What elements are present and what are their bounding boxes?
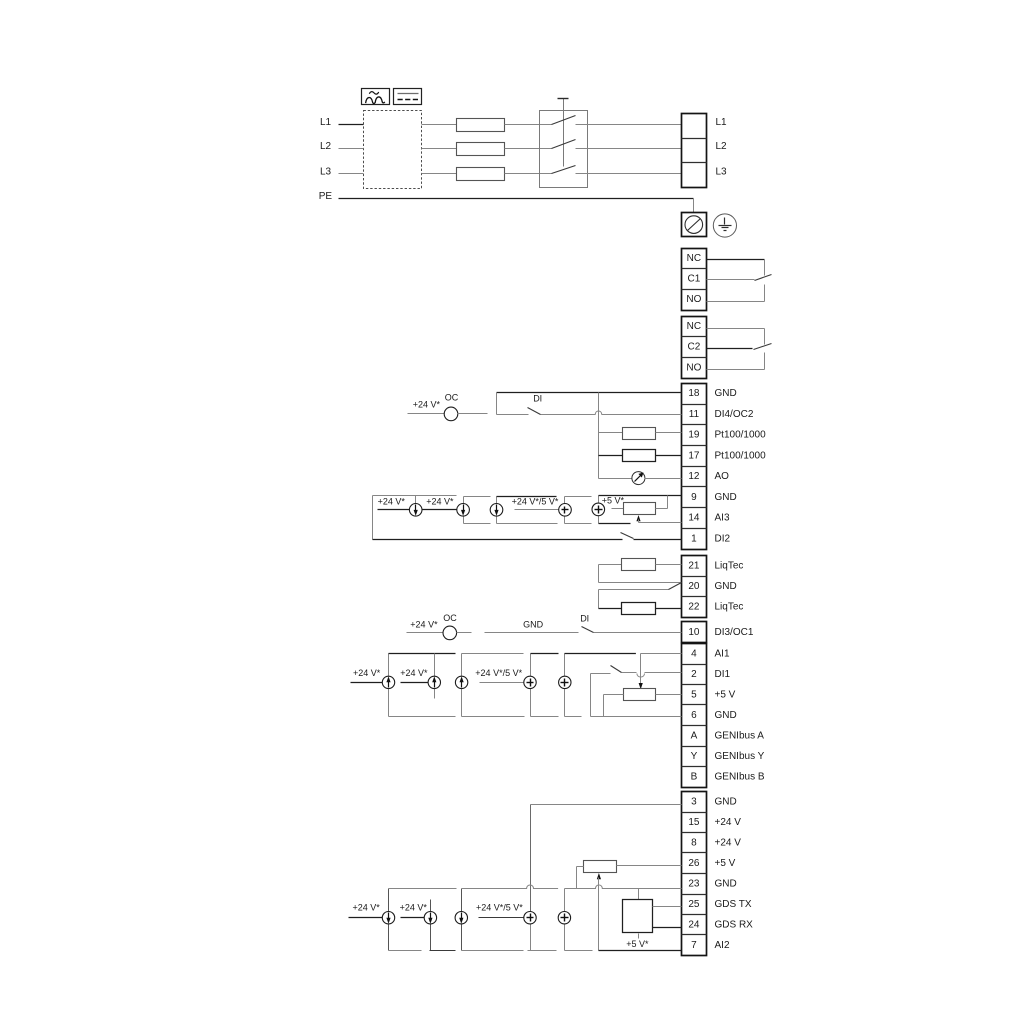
svg-text:AI3: AI3: [715, 513, 730, 524]
svg-text:AI1: AI1: [715, 648, 730, 659]
svg-text:24: 24: [688, 919, 700, 930]
svg-text:+5 V: +5 V: [715, 858, 736, 869]
svg-text:7: 7: [691, 940, 697, 951]
svg-text:LiqTec: LiqTec: [715, 601, 744, 612]
svg-text:GENIbus A: GENIbus A: [715, 730, 765, 741]
svg-text:4: 4: [691, 648, 697, 659]
svg-text:B: B: [691, 771, 698, 782]
svg-text:GENIbus B: GENIbus B: [715, 771, 765, 782]
svg-text:1: 1: [691, 533, 697, 544]
svg-text:6: 6: [691, 710, 697, 721]
svg-text:NC: NC: [687, 321, 701, 332]
svg-text:10: 10: [688, 627, 700, 638]
svg-text:L1: L1: [716, 117, 728, 128]
svg-text:+24 V: +24 V: [715, 837, 742, 848]
svg-text:DI4/OC2: DI4/OC2: [715, 409, 754, 420]
svg-text:NO: NO: [686, 362, 701, 373]
svg-text:+24 V*: +24 V*: [410, 620, 438, 630]
svg-text:NC: NC: [687, 253, 701, 264]
svg-text:14: 14: [688, 513, 700, 524]
svg-text:AO: AO: [715, 471, 730, 482]
svg-text:AI2: AI2: [715, 940, 730, 951]
svg-text:+24 V*: +24 V*: [400, 668, 428, 678]
svg-text:18: 18: [688, 388, 700, 399]
svg-text:C1: C1: [688, 273, 701, 284]
svg-text:L3: L3: [320, 167, 332, 178]
svg-text:GND: GND: [715, 710, 737, 721]
svg-text:23: 23: [688, 878, 700, 889]
svg-text:GND: GND: [523, 619, 544, 629]
svg-text:Y: Y: [691, 751, 698, 762]
svg-text:+5 V*: +5 V*: [602, 496, 625, 506]
svg-text:9: 9: [691, 492, 697, 503]
svg-text:L1: L1: [320, 117, 332, 128]
svg-text:11: 11: [689, 409, 700, 420]
svg-text:GND: GND: [715, 581, 737, 592]
svg-text:C2: C2: [688, 342, 701, 353]
svg-text:PE: PE: [319, 191, 333, 202]
svg-text:+24 V*/5 V*: +24 V*/5 V*: [475, 668, 522, 678]
svg-text:+24 V*: +24 V*: [400, 903, 428, 913]
svg-text:DI3/OC1: DI3/OC1: [715, 627, 754, 638]
svg-text:26: 26: [688, 858, 700, 869]
svg-text:DI: DI: [580, 613, 589, 623]
svg-text:+24 V*: +24 V*: [353, 903, 381, 913]
svg-text:21: 21: [688, 560, 700, 571]
svg-text:+5 V*: +5 V*: [626, 939, 649, 949]
svg-text:+5 V: +5 V: [715, 689, 736, 700]
svg-text:3: 3: [691, 796, 697, 807]
svg-text:GND: GND: [715, 492, 737, 503]
svg-text:GDS RX: GDS RX: [715, 919, 754, 930]
svg-text:19: 19: [688, 430, 700, 441]
svg-text:22: 22: [688, 601, 700, 612]
svg-text:L3: L3: [716, 167, 728, 178]
svg-text:+24 V*: +24 V*: [378, 496, 406, 506]
svg-text:GND: GND: [715, 796, 737, 807]
svg-text:20: 20: [688, 581, 700, 592]
svg-text:A: A: [691, 730, 698, 741]
svg-text:+24 V*: +24 V*: [413, 400, 441, 410]
svg-text:Pt100/1000: Pt100/1000: [715, 430, 767, 441]
svg-text:Pt100/1000: Pt100/1000: [715, 450, 767, 461]
svg-text:DI1: DI1: [715, 669, 731, 680]
svg-text:2: 2: [691, 669, 697, 680]
svg-text:17: 17: [688, 450, 700, 461]
svg-text:GND: GND: [715, 878, 737, 889]
svg-text:12: 12: [688, 471, 700, 482]
svg-text:15: 15: [688, 817, 700, 828]
svg-text:+24 V*: +24 V*: [353, 668, 381, 678]
svg-text:L2: L2: [716, 141, 728, 152]
svg-text:+24 V*: +24 V*: [426, 496, 454, 506]
svg-text:DI: DI: [533, 393, 542, 403]
svg-text:+24 V*/5 V*: +24 V*/5 V*: [476, 903, 523, 913]
svg-text:L2: L2: [320, 141, 332, 152]
svg-text:5: 5: [691, 689, 697, 700]
svg-text:GENIbus Y: GENIbus Y: [715, 751, 765, 762]
svg-text:DI2: DI2: [715, 533, 731, 544]
svg-text:OC: OC: [443, 613, 457, 623]
svg-text:GDS TX: GDS TX: [715, 899, 752, 910]
svg-text:GND: GND: [715, 388, 737, 399]
svg-text:8: 8: [691, 837, 697, 848]
svg-text:+24 V*/5 V*: +24 V*/5 V*: [512, 496, 559, 506]
svg-text:OC: OC: [445, 393, 459, 403]
svg-text:LiqTec: LiqTec: [715, 560, 744, 571]
svg-text:25: 25: [688, 899, 700, 910]
svg-text:NO: NO: [686, 294, 701, 305]
svg-text:+24 V: +24 V: [715, 817, 742, 828]
